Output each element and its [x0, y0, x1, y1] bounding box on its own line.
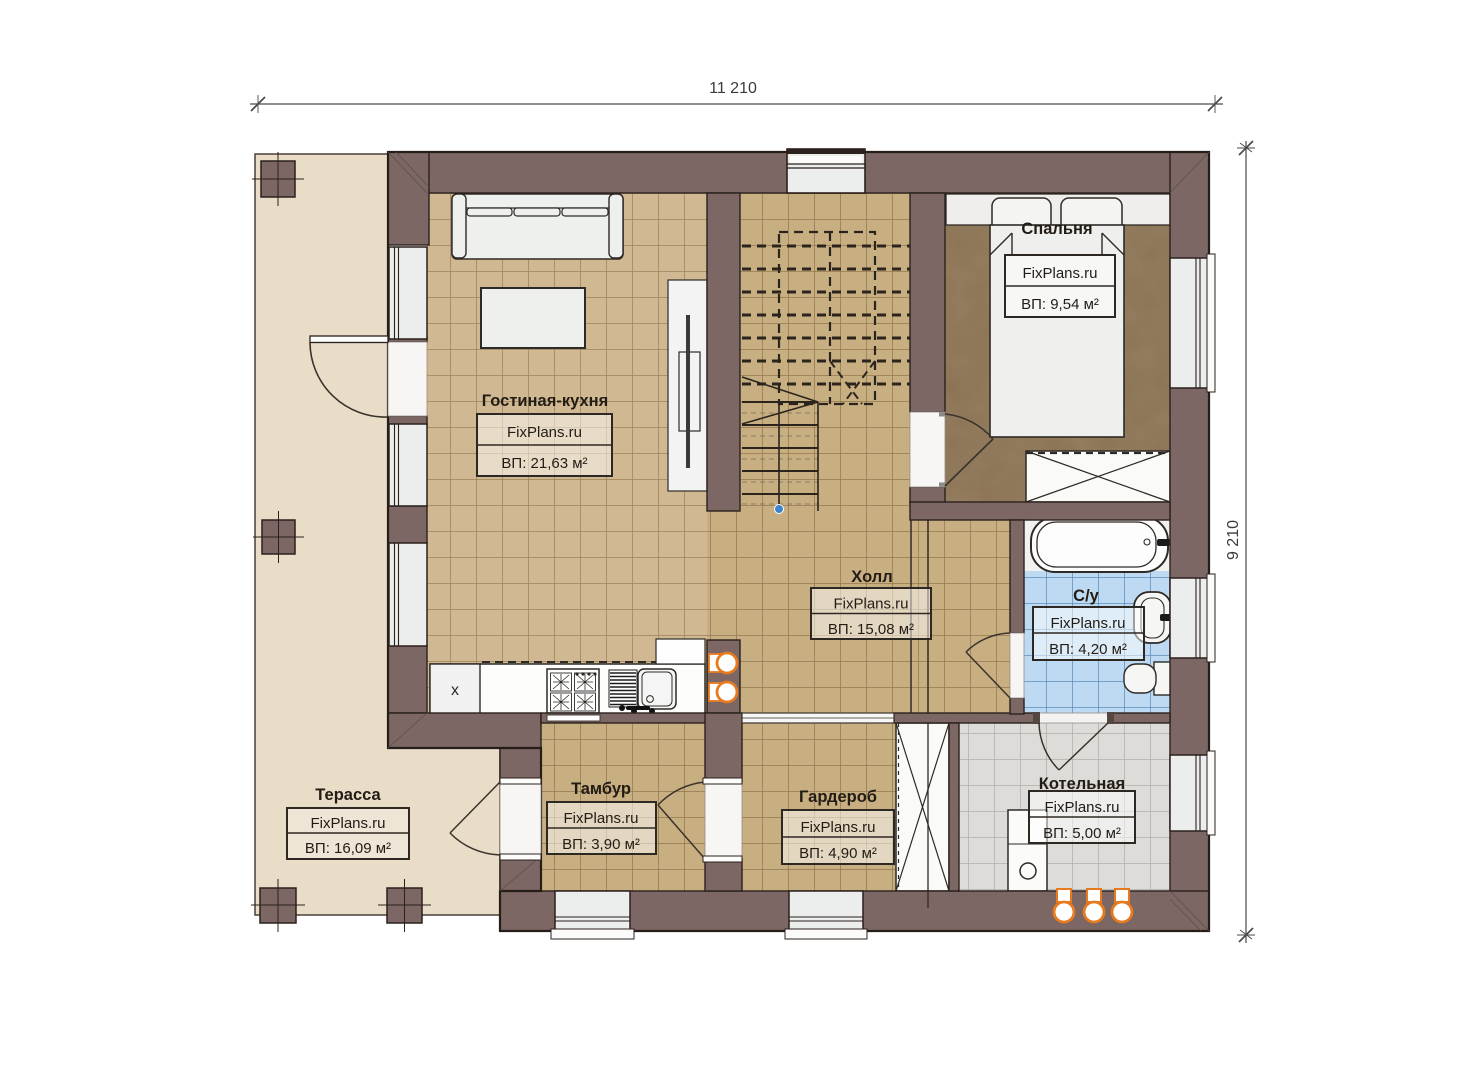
- svg-text:ВП: 3,90 м²: ВП: 3,90 м²: [562, 836, 640, 853]
- svg-text:ВП: 4,20 м²: ВП: 4,20 м²: [1049, 641, 1127, 658]
- svg-text:FixPlans.ru: FixPlans.ru: [310, 815, 385, 832]
- svg-text:ВП: 4,90 м²: ВП: 4,90 м²: [799, 845, 877, 862]
- svg-text:ВП: 15,08 м²: ВП: 15,08 м²: [828, 621, 914, 638]
- svg-text:FixPlans.ru: FixPlans.ru: [1022, 265, 1097, 282]
- svg-text:FixPlans.ru: FixPlans.ru: [800, 819, 875, 836]
- svg-text:Тамбур: Тамбур: [571, 780, 631, 798]
- svg-text:Гардероб: Гардероб: [799, 788, 877, 806]
- svg-text:x: x: [451, 682, 459, 699]
- svg-text:FixPlans.ru: FixPlans.ru: [563, 810, 638, 827]
- svg-text:ВП: 9,54 м²: ВП: 9,54 м²: [1021, 296, 1099, 313]
- svg-text:11 210: 11 210: [709, 80, 757, 97]
- svg-text:FixPlans.ru: FixPlans.ru: [1044, 799, 1119, 816]
- svg-text:С/у: С/у: [1073, 587, 1100, 605]
- svg-text:Спальня: Спальня: [1021, 220, 1092, 238]
- svg-text:Терасса: Терасса: [315, 786, 381, 804]
- svg-text:Гостиная-кухня: Гостиная-кухня: [482, 392, 608, 410]
- svg-text:ВП: 5,00 м²: ВП: 5,00 м²: [1043, 825, 1121, 842]
- svg-text:9 210: 9 210: [1225, 520, 1242, 560]
- svg-text:FixPlans.ru: FixPlans.ru: [507, 424, 582, 441]
- svg-text:FixPlans.ru: FixPlans.ru: [833, 596, 908, 613]
- svg-text:ВП: 16,09 м²: ВП: 16,09 м²: [305, 840, 391, 857]
- svg-text:ВП: 21,63 м²: ВП: 21,63 м²: [501, 455, 587, 472]
- svg-text:FixPlans.ru: FixPlans.ru: [1050, 615, 1125, 632]
- svg-text:Холл: Холл: [851, 568, 892, 586]
